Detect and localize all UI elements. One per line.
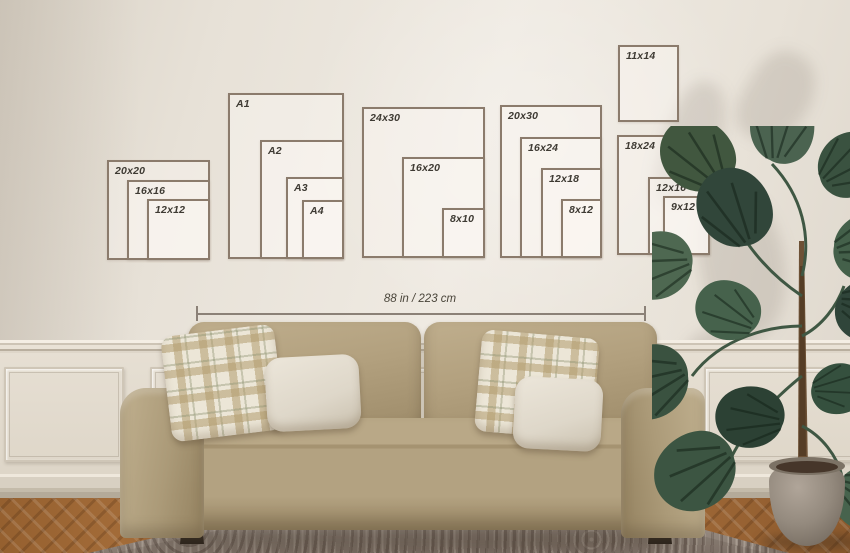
plant-pot xyxy=(769,457,845,546)
size-box-label: 20x30 xyxy=(508,110,538,122)
measurement-label: 88 in / 223 cm xyxy=(196,293,644,305)
size-box-8x12: 8x12 xyxy=(561,199,602,258)
monstera-plant xyxy=(652,126,850,553)
size-box-12x12: 12x12 xyxy=(147,199,210,260)
size-box-label: 24x30 xyxy=(370,112,400,124)
wainscot-panel xyxy=(4,367,124,462)
sofa xyxy=(120,318,705,553)
size-box-label: 16x20 xyxy=(410,162,440,174)
measurement-line xyxy=(196,313,644,315)
size-box-A4: A4 xyxy=(302,200,344,259)
size-box-label: A3 xyxy=(294,182,308,194)
size-box-11x14: 11x14 xyxy=(618,45,679,122)
size-box-label: 12x12 xyxy=(155,204,185,216)
size-box-8x10: 8x10 xyxy=(442,208,485,258)
room-scene: 20x2016x1612x12A1A2A3A424x3016x208x1020x… xyxy=(0,0,850,553)
size-box-label: 8x10 xyxy=(450,213,474,225)
size-box-label: 8x12 xyxy=(569,204,593,216)
cream-pillow-right xyxy=(512,376,604,453)
size-box-label: 20x20 xyxy=(115,165,145,177)
size-box-label: 16x24 xyxy=(528,142,558,154)
size-box-label: A4 xyxy=(310,205,324,217)
size-box-label: 12x18 xyxy=(549,173,579,185)
size-box-label: 16x16 xyxy=(135,185,165,197)
cream-pillow-left xyxy=(264,354,362,433)
size-box-label: 18x24 xyxy=(625,140,655,152)
size-box-label: A2 xyxy=(268,145,282,157)
monstera-plant-graphic xyxy=(652,126,850,553)
size-box-label: 11x14 xyxy=(626,50,655,62)
size-box-label: A1 xyxy=(236,98,250,110)
